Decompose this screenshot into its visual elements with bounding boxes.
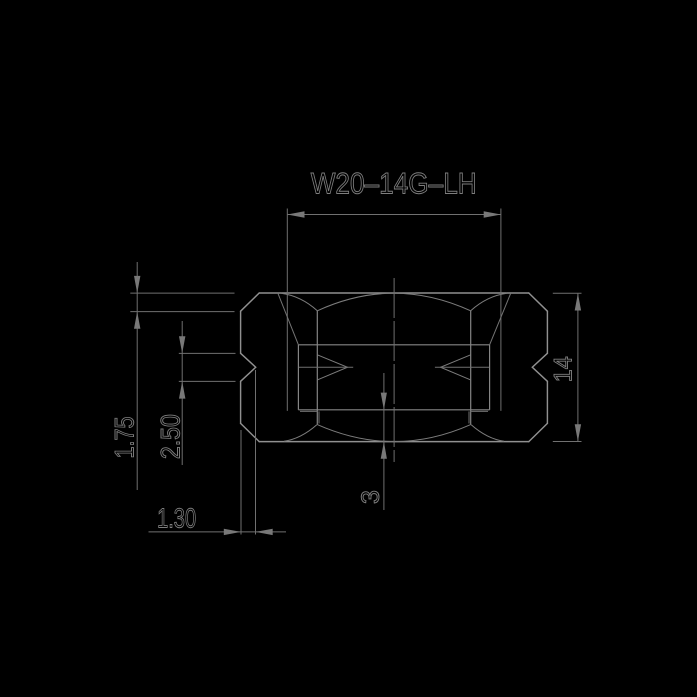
svg-text:14: 14 bbox=[550, 356, 578, 382]
svg-text:2.50: 2.50 bbox=[156, 414, 186, 459]
svg-text:3: 3 bbox=[357, 490, 385, 504]
svg-text:1.75: 1.75 bbox=[109, 417, 139, 459]
svg-text:1.30: 1.30 bbox=[157, 503, 196, 534]
svg-text:W20–14G–LH: W20–14G–LH bbox=[311, 168, 477, 201]
